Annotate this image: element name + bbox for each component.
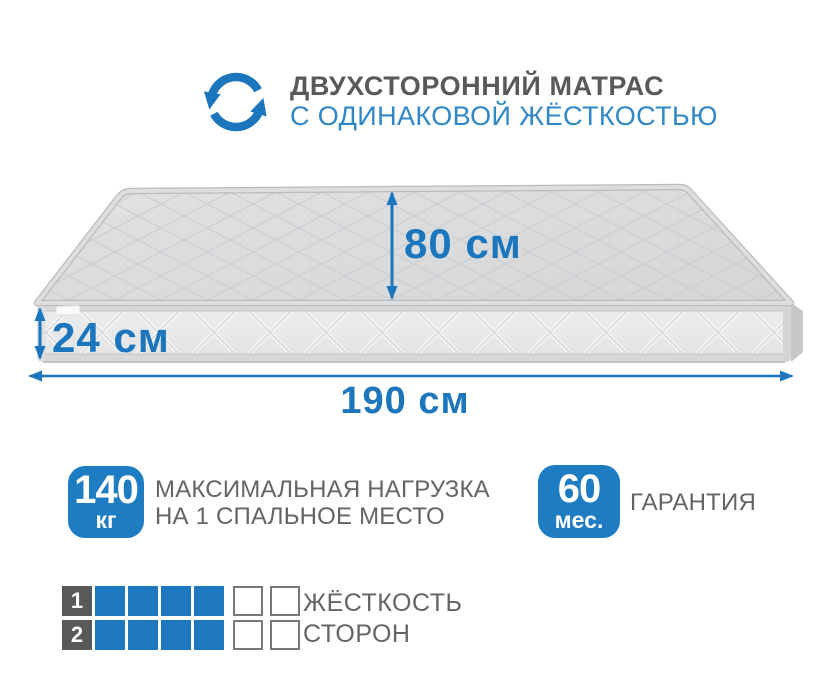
scale-cell-empty [270, 586, 300, 616]
scale-cell-empty [233, 620, 263, 650]
scale-cell-empty [233, 586, 263, 616]
scale-cell-filled [95, 586, 125, 616]
scale-cell-filled [194, 620, 224, 650]
max-load-badge: 140 кг [68, 466, 144, 538]
scale-cell-filled [128, 620, 158, 650]
hardness-scale-label: ЖЁСТКОСТЬ СТОРОН [303, 588, 462, 650]
depth-dimension-label: 80 см [404, 220, 522, 267]
warranty-unit: мес. [555, 508, 604, 532]
mattress-infographic: ДВУХСТОРОННИЙ МАТРАС С ОДИНАКОВОЙ ЖЁСТКО… [0, 0, 816, 700]
scale-cell-filled [161, 586, 191, 616]
mattress-diagram: 80 см 24 см 190 см [0, 180, 816, 430]
scale-row: 1 [62, 586, 300, 616]
scale-cell-empty [270, 620, 300, 650]
max-load-label-line2: НА 1 СПАЛЬНОЕ МЕСТО [155, 503, 490, 530]
width-dimension-label: 190 см [340, 380, 469, 422]
scale-cell-filled [194, 586, 224, 616]
max-load-label-line1: МАКСИМАЛЬНАЯ НАГРУЗКА [155, 476, 490, 503]
scale-row: 2 [62, 620, 300, 650]
title-line1: ДВУХСТОРОННИЙ МАТРАС [290, 72, 718, 101]
warranty-label: ГАРАНТИЯ [630, 489, 756, 516]
mattress-right-face [791, 303, 803, 362]
max-load-value: 140 [74, 472, 138, 509]
scale-cell-filled [161, 620, 191, 650]
hardness-scale-label-line2: СТОРОН [303, 619, 462, 650]
warranty-value: 60 [558, 471, 601, 508]
hardness-scale: 12 [62, 586, 300, 654]
max-load-label: МАКСИМАЛЬНАЯ НАГРУЗКА НА 1 СПАЛЬНОЕ МЕСТ… [155, 476, 490, 530]
scale-cell-filled [95, 620, 125, 650]
height-dimension-label: 24 см [52, 314, 170, 361]
max-load-unit: кг [95, 508, 116, 532]
hardness-scale-label-line1: ЖЁСТКОСТЬ [303, 588, 462, 619]
warranty-label-line1: ГАРАНТИЯ [630, 489, 756, 516]
scale-row-number: 2 [62, 620, 92, 650]
rotate-arrows-icon [202, 67, 270, 135]
warranty-badge: 60 мес. [538, 465, 620, 538]
scale-row-number: 1 [62, 586, 92, 616]
title-line2: С ОДИНАКОВОЙ ЖЁСТКОСТЬЮ [290, 102, 718, 131]
header-titles: ДВУХСТОРОННИЙ МАТРАС С ОДИНАКОВОЙ ЖЁСТКО… [290, 72, 718, 131]
scale-cell-filled [128, 586, 158, 616]
